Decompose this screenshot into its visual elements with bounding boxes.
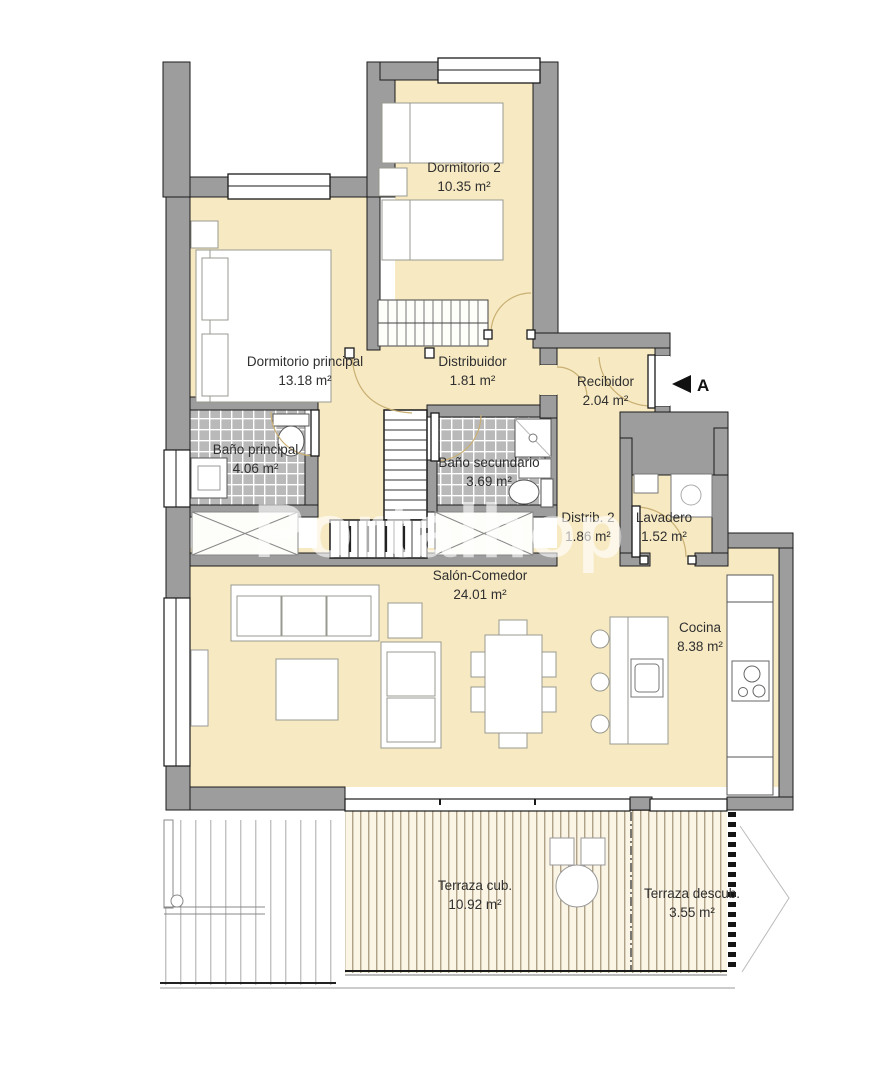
room-area: 1.81 m² bbox=[400, 371, 545, 390]
room-area: 10.35 m² bbox=[384, 177, 544, 196]
terrace-chair bbox=[550, 838, 574, 865]
room-area: 1.52 m² bbox=[620, 527, 708, 546]
room-area: 8.38 m² bbox=[655, 637, 745, 656]
room-name: Baño principal bbox=[188, 440, 323, 459]
room-area: 3.69 m² bbox=[423, 472, 555, 491]
room-name: Lavadero bbox=[620, 508, 708, 527]
stool bbox=[591, 630, 609, 648]
room-area: 10.92 m² bbox=[400, 895, 550, 914]
room-area: 1.86 m² bbox=[550, 527, 626, 546]
window-dorm-2 bbox=[438, 58, 540, 83]
room-label-dormitorio-2: Dormitorio 2 10.35 m² bbox=[384, 158, 544, 196]
room-label-recibidor: Recibidor 2.04 m² bbox=[548, 372, 663, 410]
room-name: Terraza descub. bbox=[623, 884, 761, 903]
room-label-lavadero: Lavadero 1.52 m² bbox=[620, 508, 708, 546]
room-label-salon-comedor: Salón-Comedor 24.01 m² bbox=[405, 566, 555, 604]
door-jamb bbox=[688, 556, 696, 564]
room-label-cocina: Cocina 8.38 m² bbox=[655, 618, 745, 656]
terrace-table bbox=[556, 865, 598, 907]
armchair-chaise bbox=[381, 642, 441, 748]
room-name: Baño secundario bbox=[423, 453, 555, 472]
wardrobe-x-right bbox=[435, 512, 533, 555]
room-name: Terraza cub. bbox=[400, 876, 550, 895]
wardrobe-dorm-2 bbox=[378, 300, 488, 346]
room-label-bano-principal: Baño principal 4.06 m² bbox=[188, 440, 323, 478]
stool bbox=[591, 715, 609, 733]
room-name: Dormitorio principal bbox=[215, 352, 395, 371]
window-bano-principal bbox=[164, 450, 190, 507]
neighbor-terrace bbox=[164, 820, 336, 985]
room-area: 24.01 m² bbox=[405, 585, 555, 604]
kitchen-counter bbox=[727, 575, 773, 795]
section-marker: A bbox=[672, 375, 709, 395]
room-area: 4.06 m² bbox=[188, 459, 323, 478]
coffee-table bbox=[276, 659, 338, 720]
room-label-bano-secundario: Baño secundario 3.69 m² bbox=[423, 453, 555, 491]
room-name: Salón-Comedor bbox=[405, 566, 555, 585]
stool bbox=[591, 673, 609, 691]
door-jamb bbox=[527, 330, 535, 339]
door-jamb bbox=[484, 330, 492, 339]
room-name: Distrib. 2 bbox=[550, 508, 626, 527]
room-label-terraza-descub: Terraza descub. 3.55 m² bbox=[623, 884, 761, 922]
laundry-sink bbox=[634, 474, 658, 493]
room-name: Recibidor bbox=[548, 372, 663, 391]
room-area: 13.18 m² bbox=[215, 371, 395, 390]
room-label-distrib-2: Distrib. 2 1.86 m² bbox=[550, 508, 626, 546]
section-arrow-icon bbox=[672, 375, 691, 393]
window-dorm-principal bbox=[228, 174, 330, 199]
terrace-sliding-doors bbox=[345, 799, 727, 811]
room-label-dormitorio-principal: Dormitorio principal 13.18 m² bbox=[215, 352, 395, 390]
room-label-terraza-cub: Terraza cub. 10.92 m² bbox=[400, 876, 550, 914]
door-jamb bbox=[640, 556, 648, 564]
room-area: 2.04 m² bbox=[548, 391, 663, 410]
room-name: Cocina bbox=[655, 618, 745, 637]
room-area: 3.55 m² bbox=[623, 903, 761, 922]
sofa bbox=[231, 585, 379, 641]
room-label-distribuidor: Distribuidor 1.81 m² bbox=[400, 352, 545, 390]
room-name: Dormitorio 2 bbox=[384, 158, 544, 177]
side-table bbox=[388, 603, 422, 638]
wardrobe-x-left bbox=[192, 512, 298, 555]
terrace-chair bbox=[581, 838, 605, 865]
section-marker-label: A bbox=[697, 376, 709, 395]
room-name: Distribuidor bbox=[400, 352, 545, 371]
floor-plan-page: A Dormitorio 2 10.35 m² Dormitorio princ… bbox=[0, 0, 891, 1080]
